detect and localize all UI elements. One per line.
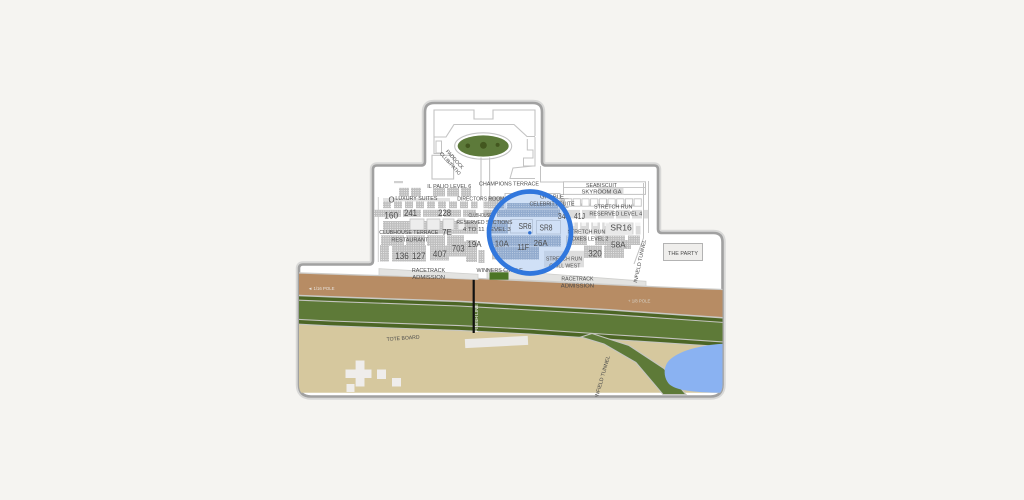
svg-text:THE PARTY: THE PARTY bbox=[668, 251, 698, 257]
svg-text:RESTAURANT: RESTAURANT bbox=[391, 238, 429, 244]
svg-text:7E: 7E bbox=[442, 227, 452, 237]
svg-text:LUXURY SUITES: LUXURY SUITES bbox=[395, 196, 438, 202]
svg-text:RESERVED SECTIONS: RESERVED SECTIONS bbox=[456, 220, 513, 226]
svg-text:SKYROOM GA: SKYROOM GA bbox=[582, 190, 623, 196]
svg-text:127: 127 bbox=[412, 251, 426, 261]
svg-text:41J: 41J bbox=[574, 212, 585, 221]
svg-text:RACETRACK: RACETRACK bbox=[561, 277, 594, 283]
svg-text:407: 407 bbox=[433, 249, 447, 259]
svg-text:CLUBHOUSE TERRACE: CLUBHOUSE TERRACE bbox=[379, 230, 439, 236]
svg-text:SR16: SR16 bbox=[610, 222, 632, 232]
svg-text:◄ 1/16 POLE: ◄ 1/16 POLE bbox=[308, 286, 335, 291]
svg-text:CELEBRITY SUITE: CELEBRITY SUITE bbox=[530, 201, 576, 207]
svg-text:136: 136 bbox=[395, 251, 409, 261]
svg-text:BOXES LEVEL 2: BOXES LEVEL 2 bbox=[568, 237, 608, 243]
svg-text:SR8: SR8 bbox=[540, 222, 553, 232]
svg-text:241: 241 bbox=[404, 208, 417, 218]
svg-text:11F: 11F bbox=[517, 242, 529, 252]
svg-text:CHAMPIONS TERRACE: CHAMPIONS TERRACE bbox=[479, 181, 540, 187]
svg-text:SEABISCUIT: SEABISCUIT bbox=[586, 183, 618, 189]
svg-text:+ 1/8 POLE: + 1/8 POLE bbox=[628, 299, 650, 304]
svg-text:RACETRACK: RACETRACK bbox=[412, 268, 446, 274]
svg-text:CLUBHOUSE: CLUBHOUSE bbox=[469, 213, 492, 219]
svg-text:SR6: SR6 bbox=[519, 221, 532, 231]
svg-text:19A: 19A bbox=[468, 239, 482, 249]
svg-text:26A: 26A bbox=[534, 238, 548, 248]
svg-text:703: 703 bbox=[452, 244, 465, 254]
svg-text:10A: 10A bbox=[495, 239, 509, 249]
svg-text:STRETCH RUN: STRETCH RUN bbox=[594, 205, 633, 211]
svg-text:FINISH LINE: FINISH LINE bbox=[474, 304, 480, 332]
svg-text:IL PALIO LEVEL 6: IL PALIO LEVEL 6 bbox=[427, 184, 471, 190]
svg-text:RESERVED LEVEL 4: RESERVED LEVEL 4 bbox=[589, 211, 642, 217]
svg-text:320: 320 bbox=[588, 249, 602, 259]
svg-text:ADMISSION: ADMISSION bbox=[561, 284, 595, 290]
svg-text:228: 228 bbox=[438, 208, 451, 218]
svg-text:DIRECTORS ROOM: DIRECTORS ROOM bbox=[457, 197, 504, 203]
svg-text:58A: 58A bbox=[611, 240, 626, 250]
svg-text:ADMISSION: ADMISSION bbox=[412, 275, 445, 281]
svg-text:160: 160 bbox=[384, 211, 398, 221]
svg-text:O: O bbox=[388, 196, 394, 205]
